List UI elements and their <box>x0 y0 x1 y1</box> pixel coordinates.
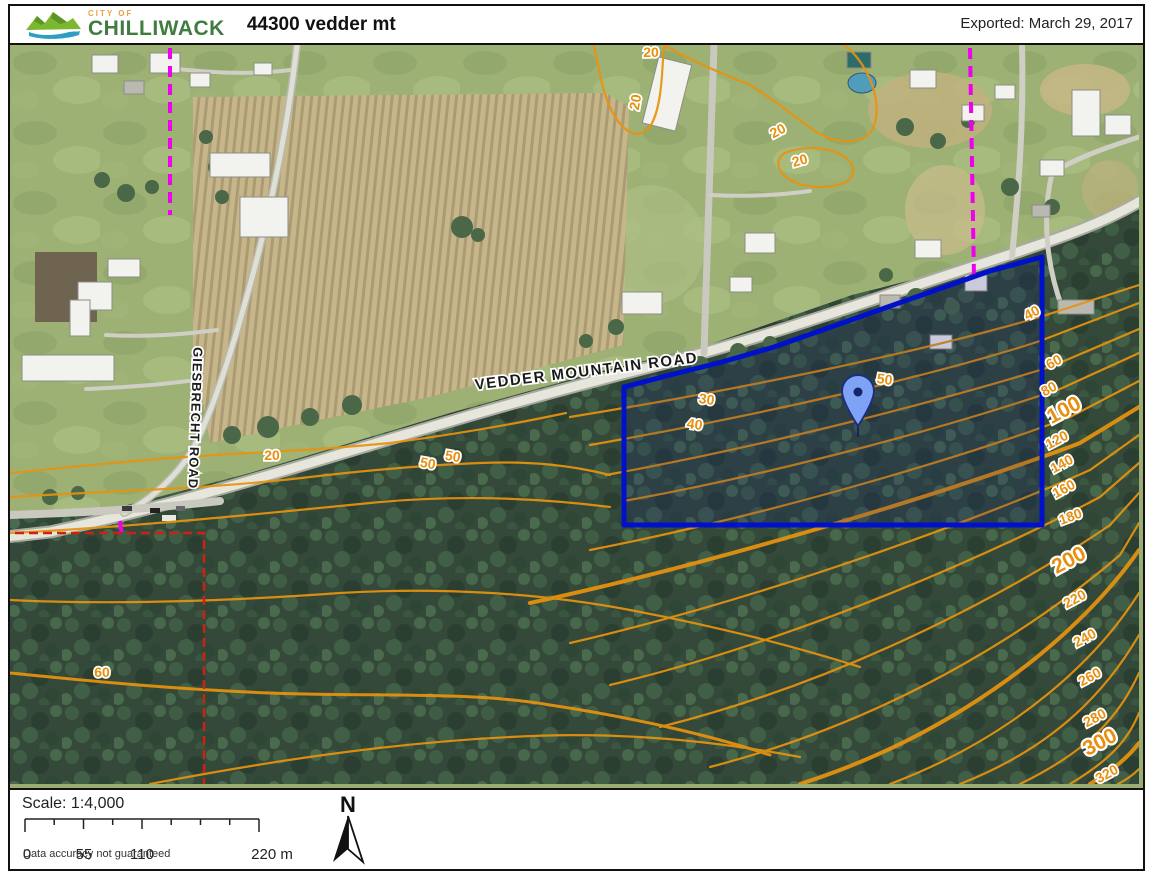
footer-bar: Scale: 1:4,000 0 55 110 220 m Data accur… <box>8 788 1145 871</box>
contour-label: 40 <box>686 415 704 433</box>
chilliwack-logo-icon <box>24 9 82 41</box>
header-bar: CITY OF CHILLIWACK 44300 vedder mt Expor… <box>8 4 1145 45</box>
north-label: N <box>340 792 356 817</box>
scalebar-label-220: 220 m <box>251 846 293 863</box>
contour-label: 20 <box>264 447 280 463</box>
scale-bar <box>10 816 290 842</box>
contour-label: 50 <box>419 454 437 472</box>
contour-label: 60 <box>94 664 110 680</box>
scale-text: Scale: 1:4,000 <box>22 795 124 813</box>
disclaimer-text: Data accuracy not guaranteed <box>23 848 170 860</box>
map-export-page: CITY OF CHILLIWACK 44300 vedder mt Expor… <box>0 0 1153 879</box>
contour-label: 20 <box>626 93 644 111</box>
contour-label: 50 <box>444 447 462 465</box>
contour-label: 20 <box>643 45 659 60</box>
north-arrow: N <box>318 792 378 866</box>
export-date: Exported: March 29, 2017 <box>960 15 1133 32</box>
contour-label: 50 <box>876 370 894 388</box>
map-svg: 2020202020304050505060406080100120140160… <box>10 45 1139 784</box>
page-title: 44300 vedder mt <box>247 14 396 36</box>
map-canvas[interactable]: 2020202020304050505060406080100120140160… <box>8 43 1145 790</box>
chilliwack-logo: CITY OF CHILLIWACK <box>24 9 225 41</box>
logo-text: CHILLIWACK <box>88 18 225 39</box>
contour-label: 30 <box>698 390 716 408</box>
